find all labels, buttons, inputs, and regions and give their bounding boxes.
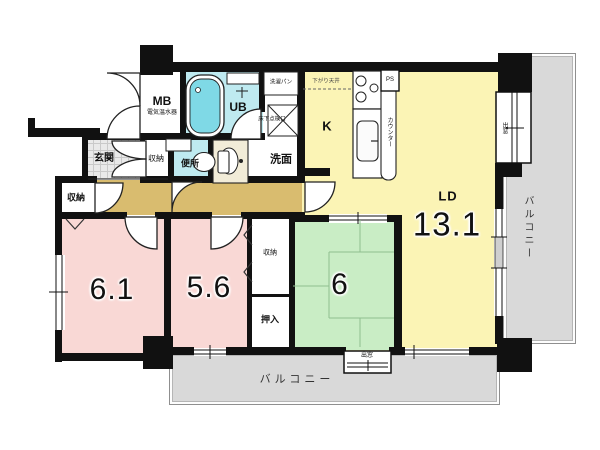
- label-room56-area: 5.6: [187, 273, 232, 303]
- label-balcony-right: バルコニー: [522, 196, 532, 261]
- label-storage-hall: 収納: [67, 194, 85, 203]
- label-bay-window-bottom: 出窓: [361, 353, 373, 359]
- label-ld: LD: [438, 190, 457, 203]
- label-storage-entry: 収納: [148, 155, 164, 163]
- mb-door-upper: [107, 73, 140, 106]
- label-washroom: 洗面: [270, 155, 292, 166]
- label-bay-window-right: 出窓: [501, 122, 507, 134]
- label-toilet: 便所: [181, 160, 199, 169]
- closet-storage: [250, 217, 291, 297]
- label-counter: カウンター: [386, 117, 392, 147]
- mb-door-lower: [107, 106, 140, 139]
- label-kitchen: K: [322, 120, 331, 133]
- floor-plan: MB 電気温水器 UB 洗濯パン 床下点検口 玄関 収納 便所 洗面 収納 K …: [0, 0, 600, 450]
- label-tatami-area: 6: [331, 270, 349, 300]
- balcony-right: [503, 53, 576, 344]
- label-oshiire: 押入: [261, 316, 279, 325]
- label-unit-bath: UB: [229, 101, 246, 113]
- label-meter-box-sub: 電気温水器: [147, 110, 177, 116]
- label-balcony-bottom: バルコニー: [260, 375, 335, 386]
- label-pipe-space: PS: [386, 77, 394, 83]
- room-unit-bath: [183, 66, 263, 141]
- label-meter-box: MB: [153, 95, 172, 107]
- label-room61-area: 6.1: [90, 275, 135, 305]
- label-genkan: 玄関: [94, 154, 114, 164]
- label-closet-storage: 収納: [263, 250, 277, 257]
- label-dropped-ceiling: 下がり天井: [312, 79, 340, 85]
- label-ld-area: 13.1: [413, 208, 481, 241]
- room-hall: [95, 180, 302, 215]
- label-laundry-pan: 洗濯パン: [270, 80, 292, 86]
- label-floor-hatch: 床下点検口: [258, 117, 286, 123]
